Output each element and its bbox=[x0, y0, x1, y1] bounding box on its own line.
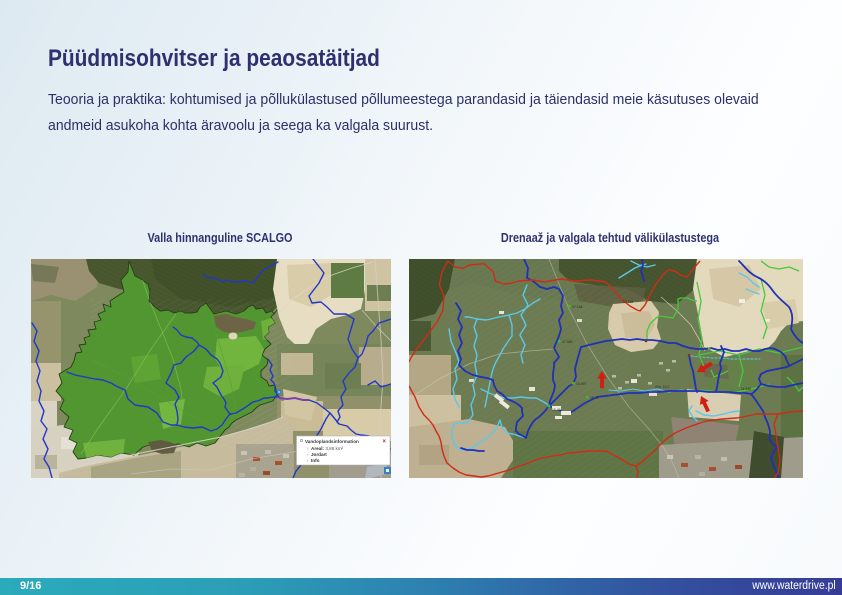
svg-text:17.148: 17.148 bbox=[572, 305, 582, 309]
svg-text:Jordart: Jordart bbox=[311, 452, 327, 457]
svg-text:Vandoplandsinformation: Vandoplandsinformation bbox=[305, 439, 359, 444]
svg-text:11.546: 11.546 bbox=[741, 387, 751, 391]
svg-text:Afld. 15.2: Afld. 15.2 bbox=[655, 385, 669, 389]
svg-text:17.118: 17.118 bbox=[623, 300, 633, 304]
svg-text:15.46: 15.46 bbox=[590, 396, 599, 400]
svg-text:17.349: 17.349 bbox=[562, 340, 572, 344]
svg-text:15.49: 15.49 bbox=[552, 408, 561, 412]
svg-text:15.497: 15.497 bbox=[576, 382, 586, 386]
svg-text:Info: Info bbox=[311, 458, 320, 463]
svg-text:Areal: 3,86 km²: Areal: 3,86 km² bbox=[311, 446, 344, 451]
svg-text:×: × bbox=[383, 439, 387, 445]
